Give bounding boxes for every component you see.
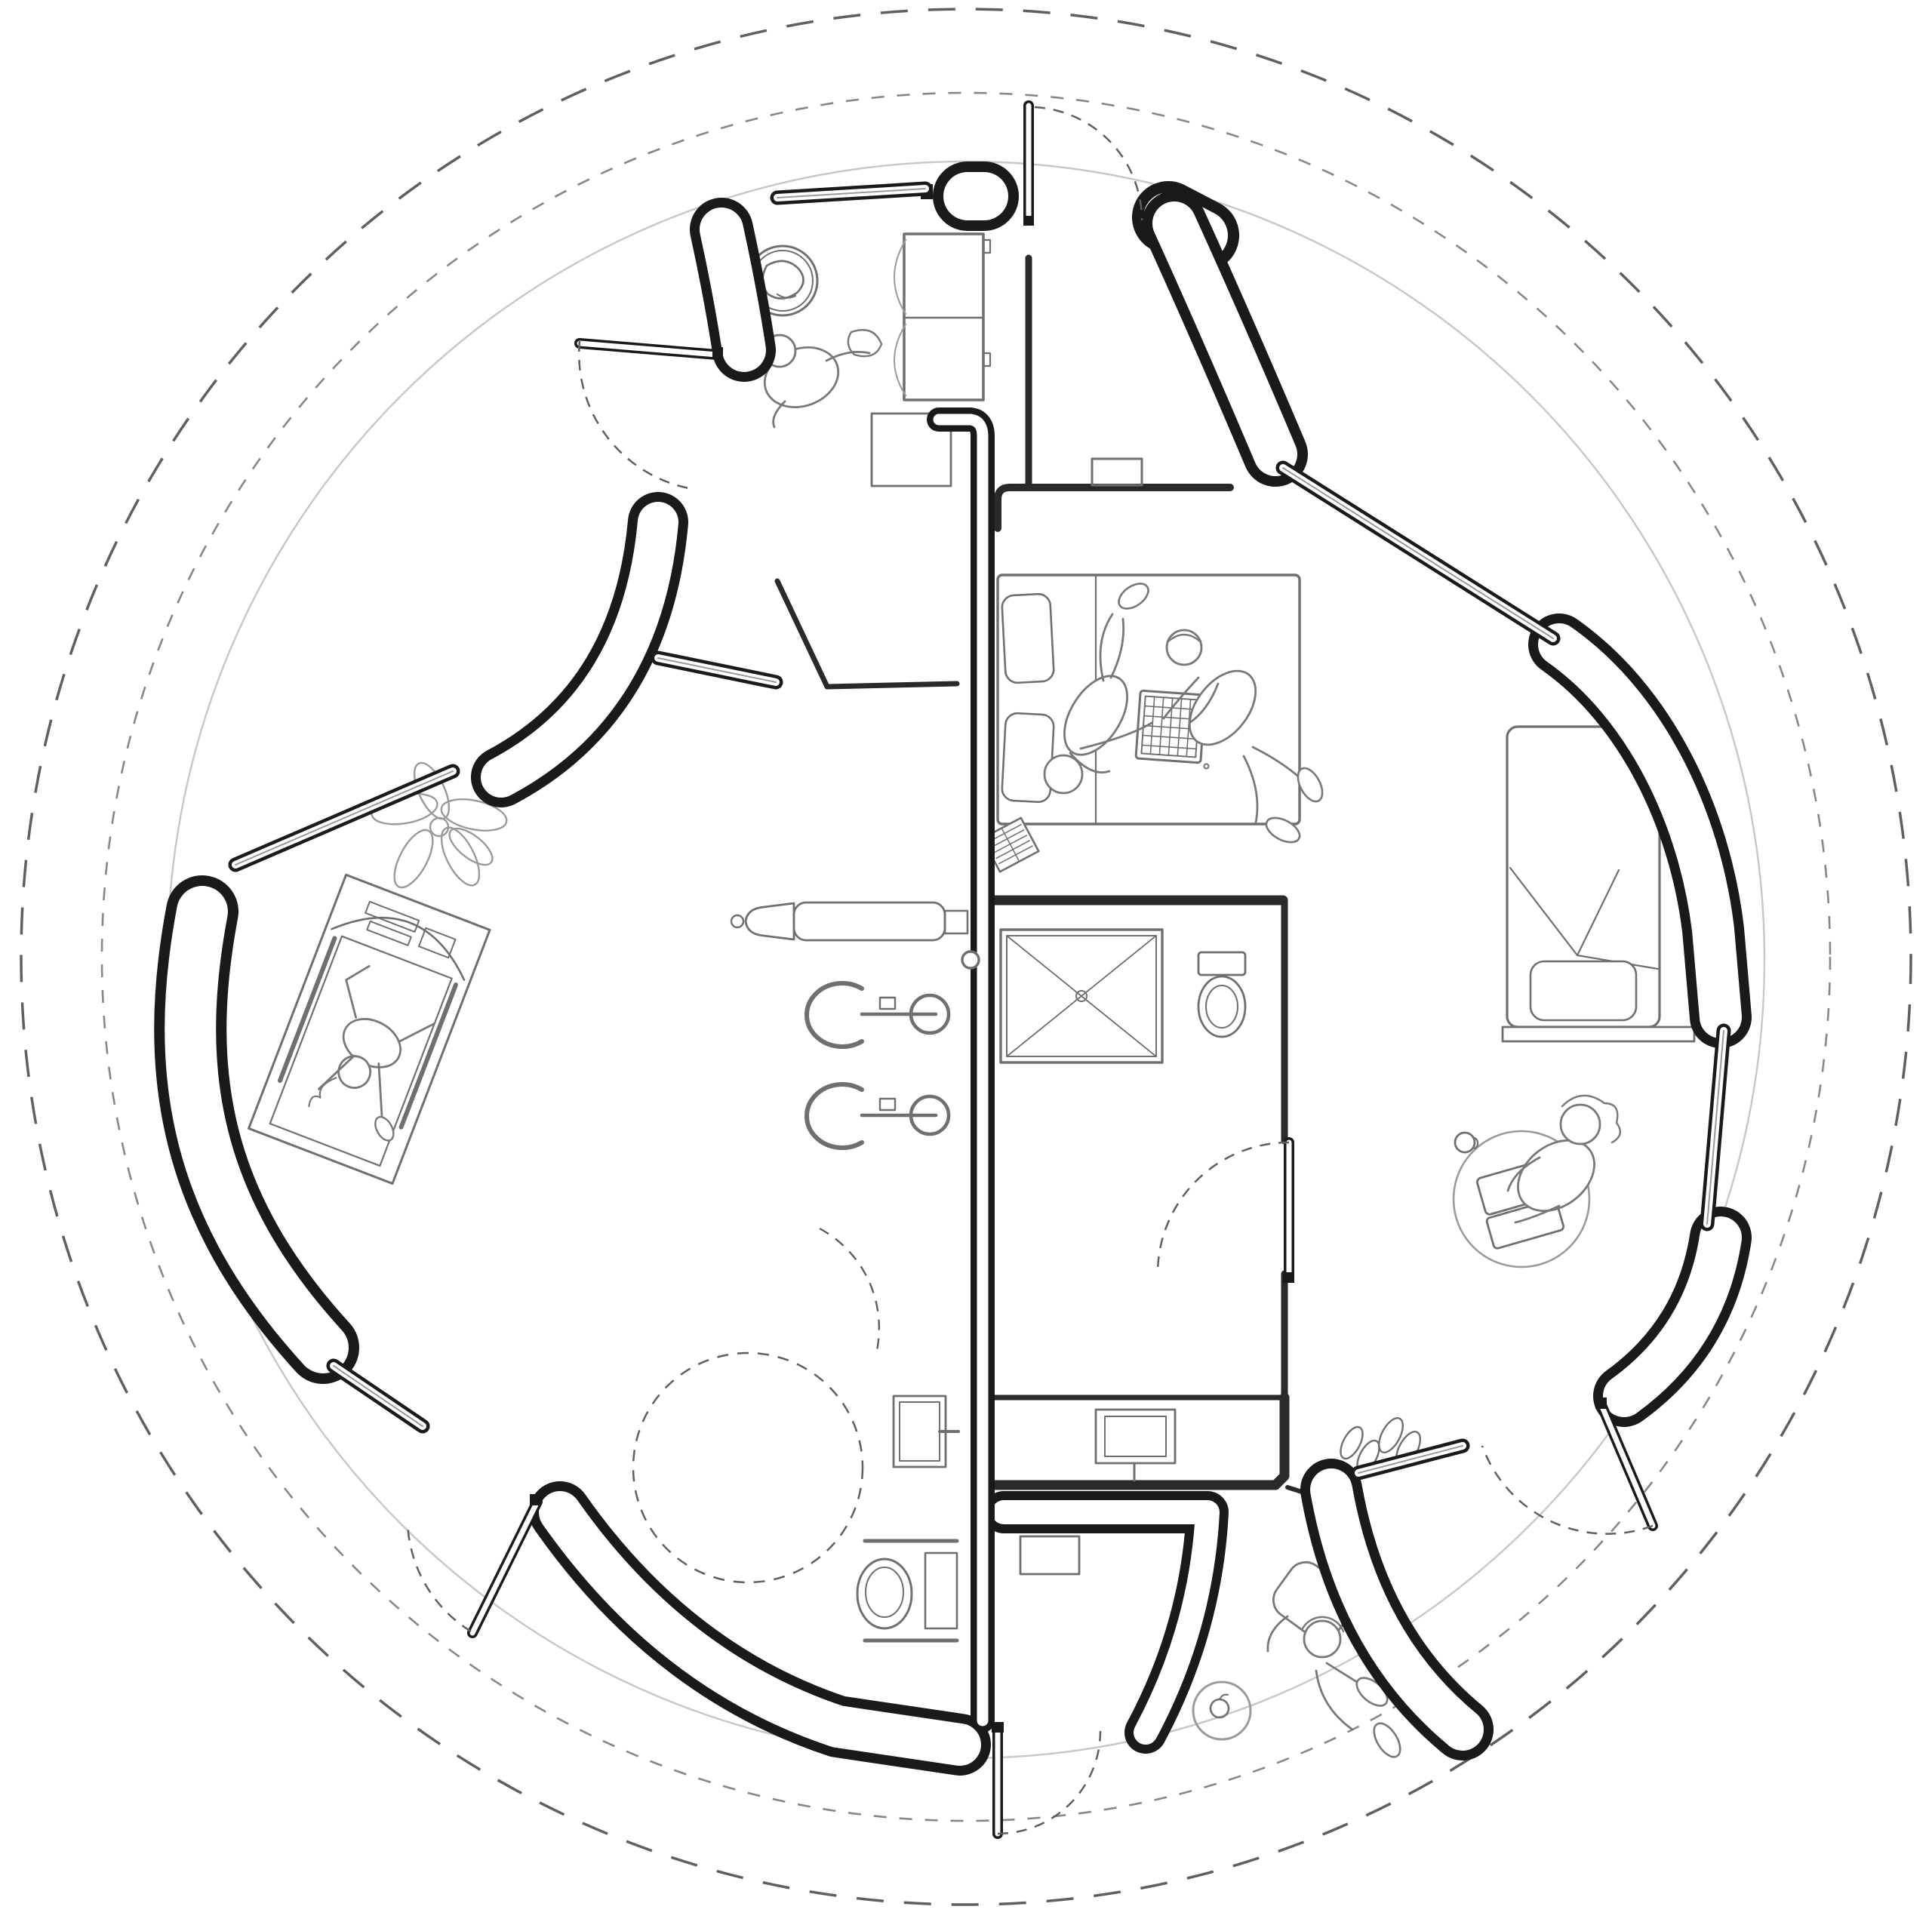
plant-leaf	[386, 824, 440, 893]
flip-flop	[1336, 1424, 1367, 1462]
window-b	[1283, 468, 1553, 638]
wc-sink	[894, 1396, 946, 1467]
wall-right-lower	[1624, 1238, 1721, 1396]
floor-plan-drawing	[0, 0, 1932, 1927]
wall-spine	[939, 420, 983, 1720]
anchor-bracket	[880, 998, 895, 1009]
spine-door-stop	[962, 952, 979, 968]
headboard-shelf	[1503, 1027, 1694, 1041]
punching-bag-bracket	[945, 911, 968, 933]
door-swing-arc	[1158, 1142, 1289, 1274]
person-walker-head	[1304, 1621, 1340, 1657]
door-hinge-tab	[1283, 1272, 1294, 1283]
plant-leaf	[434, 822, 487, 890]
side-table	[1193, 1682, 1251, 1739]
door-hinge-tab	[1023, 216, 1034, 226]
window-a	[777, 189, 925, 198]
window-g	[658, 658, 776, 682]
door-kitchen-west	[579, 341, 723, 489]
door-hinge-tab	[992, 1722, 1004, 1733]
wc-cistern	[925, 1553, 957, 1628]
apple-stem	[1220, 1695, 1228, 1699]
people-layer	[297, 330, 1620, 1761]
floor-plan-stage	[0, 0, 1932, 1927]
accessible-wc-area	[857, 1396, 958, 1640]
wall-mid-left	[501, 522, 658, 777]
sneaker	[1374, 1414, 1408, 1456]
window-f	[1358, 1446, 1463, 1473]
door-wc	[408, 1494, 541, 1633]
vanity	[1096, 1410, 1175, 1463]
apple	[1211, 1699, 1229, 1717]
bedroom-door-casing	[1092, 459, 1142, 485]
toilet-tank	[1198, 952, 1245, 975]
zig-partition	[777, 581, 957, 687]
single-bed-pillow	[1531, 961, 1636, 1020]
corridor-swing-arc	[820, 1228, 879, 1357]
person-laptop-head	[1561, 1105, 1600, 1144]
plant-pot	[430, 818, 448, 836]
punching-bag-cone	[746, 903, 794, 939]
anchor-bracket	[880, 1099, 895, 1110]
door-swing-arc	[1035, 107, 1142, 220]
pillow-bottom	[1001, 712, 1054, 802]
wall-top-right	[1168, 217, 1275, 454]
anchor-rope-coil	[807, 1084, 862, 1148]
door-bathroom	[1158, 1142, 1294, 1283]
wall-entry-west	[1004, 1512, 1207, 1733]
door-hinge-tab	[1595, 1398, 1607, 1409]
main-bedroom-area	[983, 575, 1300, 872]
window-c	[1707, 1031, 1724, 1224]
person-walker-shoe	[1369, 1719, 1406, 1761]
punching-bag-tip	[731, 915, 743, 927]
wall-bottom-right	[1331, 1490, 1463, 1730]
wc-turning-circle	[633, 1353, 863, 1582]
wall-top-left	[721, 229, 744, 350]
door-swing-arc	[579, 341, 693, 489]
door-main-entry	[992, 1722, 1100, 1834]
punching-bag-body	[794, 903, 945, 940]
window-d	[235, 771, 453, 865]
resistance-anchor-2	[807, 1084, 949, 1148]
bedroom-top-wall	[998, 487, 1230, 528]
resistance-anchor-1	[807, 983, 949, 1047]
punching-bag	[731, 903, 968, 940]
door-hinge-tab	[530, 1494, 541, 1505]
wall-bottom-left	[560, 1512, 960, 1745]
door-hinge-tab	[712, 347, 723, 359]
gym-area	[249, 758, 968, 1184]
window-e	[334, 1366, 423, 1426]
entry-wall-shelf	[1020, 1536, 1079, 1574]
mug	[1455, 1133, 1475, 1152]
door-swing-arc	[998, 1731, 1100, 1834]
pillow-top	[1001, 593, 1054, 683]
anchor-rope-coil	[807, 983, 862, 1047]
